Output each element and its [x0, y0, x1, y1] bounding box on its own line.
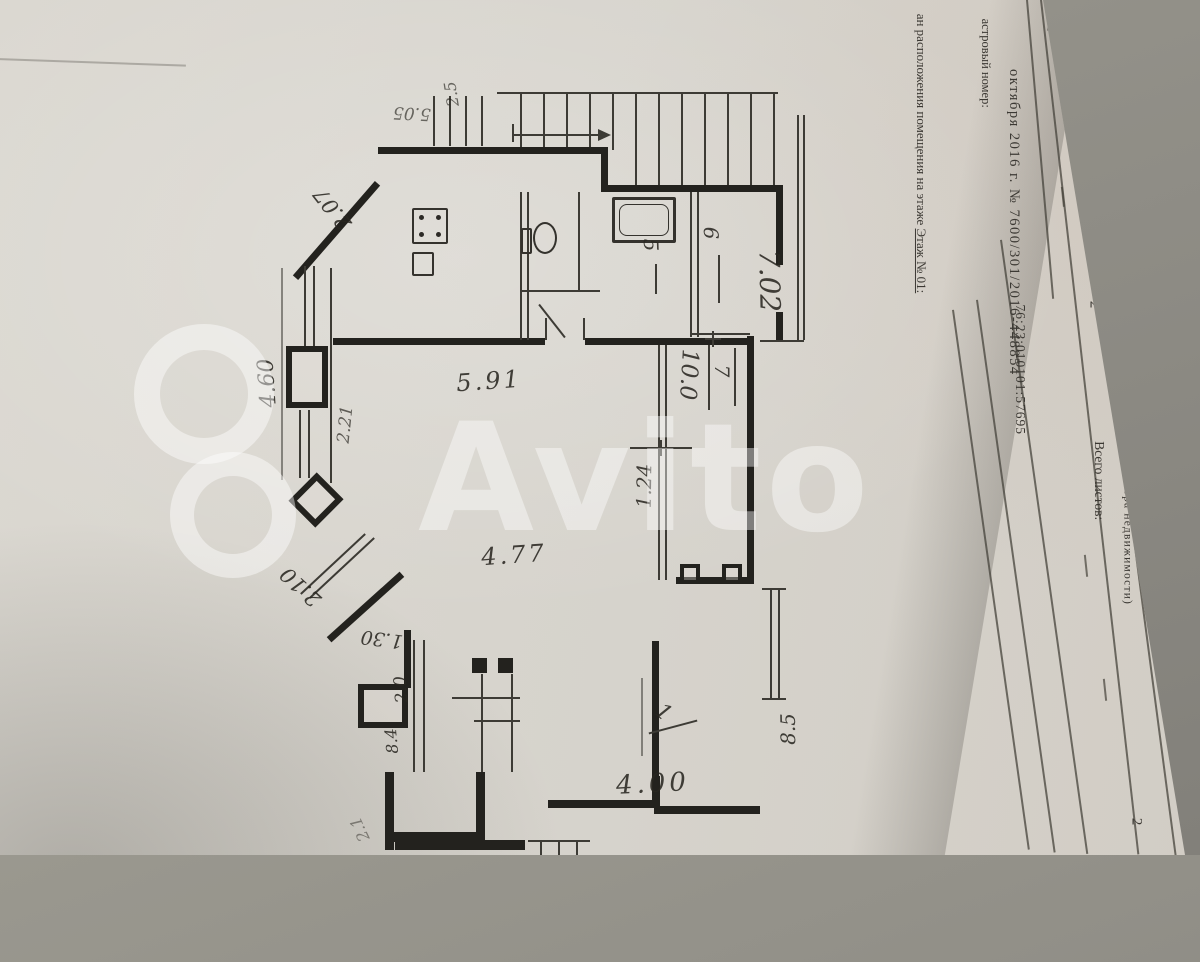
window-lines	[304, 266, 306, 346]
avito-circle-icon	[170, 452, 296, 578]
door-jamb	[545, 318, 547, 340]
stair-arrow-head	[598, 129, 611, 141]
document-paper: 2.07 5.05 2.5 4.60 2.21 5.91 7.02 10.0 7…	[0, 0, 1200, 855]
dimension-label: 2.07	[291, 159, 375, 259]
avito-wordmark: Avito	[418, 392, 873, 566]
window-lines	[413, 640, 415, 772]
wall-segment	[333, 338, 545, 345]
plan-line	[540, 842, 542, 855]
corridor-line	[511, 674, 513, 772]
door-post	[472, 658, 487, 673]
door-jamb	[583, 318, 585, 340]
partition	[527, 192, 529, 340]
window-lines	[299, 410, 301, 478]
toilet-icon	[533, 222, 557, 254]
table-tick	[1103, 679, 1107, 701]
exterior-line	[760, 340, 804, 342]
room-number: 6	[699, 178, 723, 289]
dimension-label: 2.1	[330, 776, 391, 882]
toilet-tank	[521, 228, 532, 254]
wall-segment	[476, 772, 485, 834]
window-lines	[762, 588, 786, 590]
floor-plan-caption: ан расположения помещения на этаже Этаж …	[913, 0, 928, 326]
window-lines	[281, 268, 283, 480]
exterior-line	[803, 115, 805, 340]
dimension-label: 1.30	[326, 622, 437, 654]
exterior-line	[797, 115, 799, 340]
window-lines	[313, 266, 315, 346]
partition	[520, 192, 522, 340]
wall-segment	[548, 800, 658, 808]
wall-segment	[378, 147, 608, 154]
dimension-label: 2.21	[332, 369, 360, 480]
partition	[690, 192, 692, 337]
plan-line	[558, 842, 560, 855]
partition	[697, 192, 699, 337]
door-post	[680, 564, 700, 584]
wall-segment	[654, 806, 760, 814]
stair-arrow	[512, 134, 600, 136]
table-line	[1062, 0, 1177, 858]
table-tick	[1061, 187, 1065, 207]
wall-segment	[395, 840, 525, 850]
floor-plan-caption-prefix: ан расположения помещения на этаже	[914, 14, 929, 229]
partition	[578, 192, 580, 292]
sheet-number-value: 2	[1085, 288, 1102, 322]
room-boundary	[330, 268, 332, 483]
avito-circle-icon	[134, 324, 274, 464]
stove-icon	[412, 208, 448, 244]
plan-line	[576, 842, 578, 855]
dimension-label: 2.5	[435, 38, 468, 149]
document-note: (выписка из государственного кадастра не…	[1120, 239, 1133, 639]
photographed-cadastral-passport: 2.07 5.05 2.5 4.60 2.21 5.91 7.02 10.0 7…	[0, 0, 1200, 855]
corridor-line	[481, 674, 483, 772]
document-title: КАДАСТРОВЫЙ ПАСПОРТ	[1158, 246, 1182, 661]
window-lines	[308, 410, 310, 478]
door-post	[722, 564, 742, 584]
window-lines	[423, 640, 425, 772]
window-lines	[452, 697, 520, 699]
kitchen-cabinet	[412, 252, 434, 276]
partition	[520, 290, 600, 292]
dimension-label: 8.5	[777, 674, 799, 784]
corner-block	[288, 472, 343, 527]
wall-segment	[601, 185, 783, 192]
window-lines	[770, 588, 772, 700]
document-subtitle: помещения	[1138, 362, 1154, 502]
total-sheets-label: Всего листов:	[1091, 414, 1107, 548]
table-tick	[1084, 555, 1088, 577]
room-number: 1	[614, 669, 712, 757]
dimension-label: 7.02	[754, 226, 784, 336]
door-swing	[538, 304, 565, 338]
table-line	[0, 58, 186, 66]
window-pier	[286, 346, 328, 408]
floor-value: Этаж № 01:	[914, 229, 929, 294]
room-number: 5	[639, 190, 663, 301]
door-post	[498, 658, 513, 673]
dimension-label: 4.00	[597, 768, 708, 800]
